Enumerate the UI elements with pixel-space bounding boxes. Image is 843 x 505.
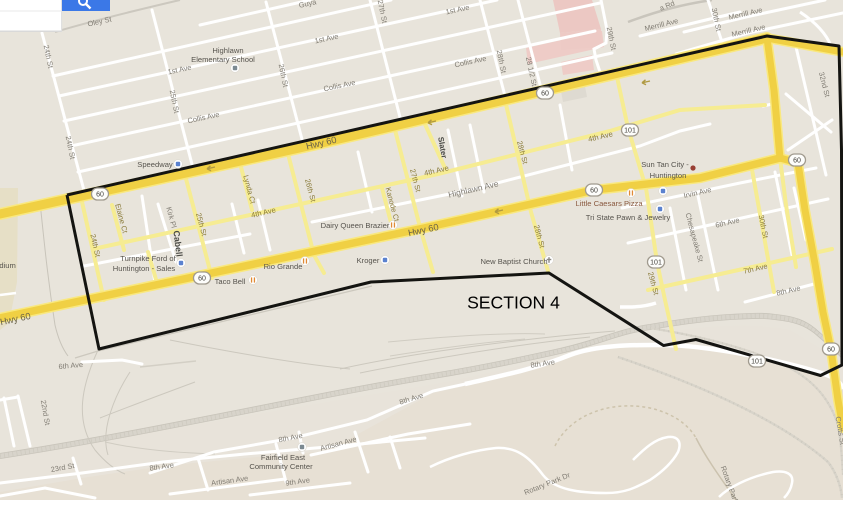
svg-text:60: 60 bbox=[96, 192, 104, 199]
svg-text:Huntington: Huntington bbox=[650, 171, 687, 180]
svg-text:Community Center: Community Center bbox=[249, 462, 313, 471]
svg-text:Tri State Pawn & Jewelry: Tri State Pawn & Jewelry bbox=[586, 213, 671, 222]
svg-text:101: 101 bbox=[624, 128, 636, 135]
svg-text:101: 101 bbox=[650, 260, 662, 267]
svg-text:New Baptist Church: New Baptist Church bbox=[480, 257, 547, 266]
svg-text:60: 60 bbox=[793, 158, 801, 165]
svg-text:SECTION 4: SECTION 4 bbox=[467, 293, 560, 313]
svg-text:60: 60 bbox=[827, 347, 835, 354]
svg-text:60: 60 bbox=[590, 188, 598, 195]
svg-text:Huntington - Sales: Huntington - Sales bbox=[113, 264, 176, 273]
svg-text:Dairy Queen Brazier: Dairy Queen Brazier bbox=[321, 221, 390, 230]
svg-text:Turnpike Ford of: Turnpike Ford of bbox=[120, 254, 176, 263]
svg-text:Sun Tan City -: Sun Tan City - bbox=[641, 160, 689, 169]
svg-text:Kroger: Kroger bbox=[357, 256, 380, 265]
svg-text:Fairfield East: Fairfield East bbox=[261, 453, 306, 462]
svg-text:60: 60 bbox=[541, 91, 549, 98]
svg-text:Little Caesars Pizza: Little Caesars Pizza bbox=[575, 199, 643, 208]
svg-text:60: 60 bbox=[198, 276, 206, 283]
svg-text:Taco Bell: Taco Bell bbox=[215, 277, 246, 286]
svg-text:Stadium: Stadium bbox=[0, 261, 16, 270]
svg-text:101: 101 bbox=[751, 359, 763, 366]
svg-text:Highlawn: Highlawn bbox=[212, 46, 243, 55]
svg-text:Rio Grande: Rio Grande bbox=[264, 262, 303, 271]
svg-text:Speedway: Speedway bbox=[137, 160, 173, 169]
svg-text:Elementary School: Elementary School bbox=[191, 55, 255, 64]
